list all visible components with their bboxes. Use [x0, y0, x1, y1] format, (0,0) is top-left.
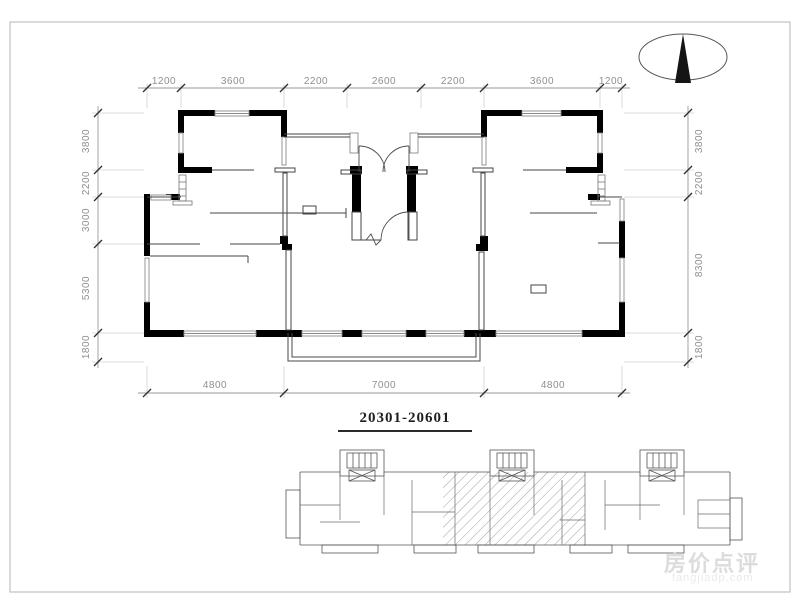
infill-partitions: [173, 175, 610, 205]
dim-label: 4800: [193, 380, 237, 391]
dim-label: 1800: [694, 325, 706, 369]
north-arrow-icon: [639, 34, 727, 83]
dim-label: 5300: [81, 266, 93, 310]
dim-label: 2600: [362, 76, 406, 87]
dim-label: 1800: [81, 325, 93, 369]
page-border: [10, 22, 790, 592]
dim-label: 3600: [520, 76, 564, 87]
floor-plan-drawing: [0, 0, 800, 600]
dim-label: 4800: [531, 380, 575, 391]
stair-cores: [340, 450, 684, 481]
dim-label: 2200: [294, 76, 338, 87]
structural-walls: [144, 110, 625, 337]
dim-label: 7000: [362, 380, 406, 391]
doors: [359, 146, 409, 245]
dim-label: 1200: [142, 76, 186, 87]
dim-label: 3800: [694, 119, 706, 163]
dim-label: 2200: [694, 161, 706, 205]
dim-label: 3600: [211, 76, 255, 87]
dim-label: 3000: [81, 198, 93, 242]
dim-label: 2200: [431, 76, 475, 87]
balcony-railing: [288, 333, 480, 361]
windows: [145, 111, 624, 336]
main-floor-plan: [144, 110, 625, 361]
dim-label: 3800: [81, 119, 93, 163]
dim-label: 8300: [694, 243, 706, 287]
highlighted-unit-hatch: [443, 472, 585, 545]
floor-plan-page: 1200 3600 2200 2600 2200 3600 1200 4800 …: [0, 0, 800, 600]
dim-label: 1200: [589, 76, 633, 87]
watermark-subtext: fangjiadp.com: [672, 572, 800, 584]
drawing-title: 20301-20601: [338, 410, 472, 432]
key-plan: [286, 450, 742, 553]
